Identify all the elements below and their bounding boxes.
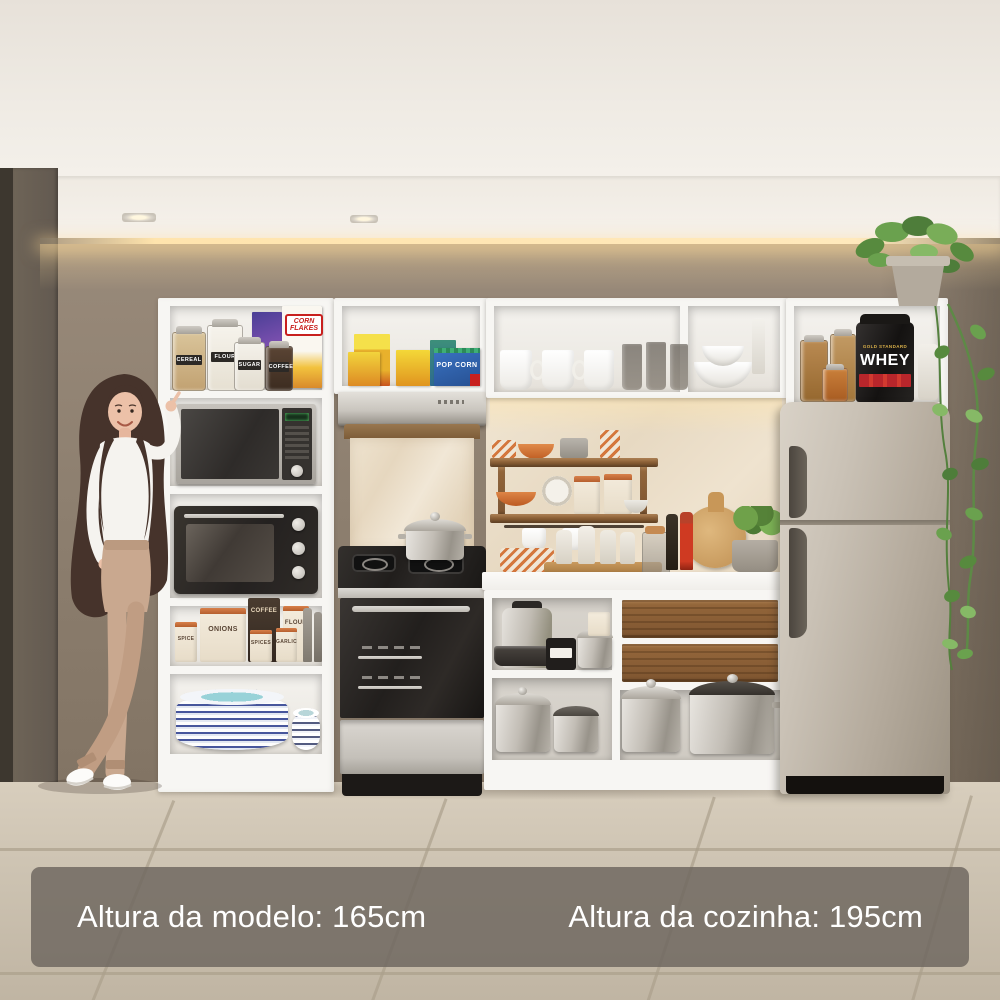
sauce-bottle-red — [680, 512, 693, 570]
fridge-base — [786, 776, 944, 794]
wood-grain — [622, 644, 778, 682]
pot-lid-knob — [430, 512, 440, 521]
freezer-handle — [789, 446, 807, 518]
oil-bottle — [303, 608, 312, 662]
pot-handle — [464, 534, 472, 539]
mug — [584, 350, 614, 390]
stove-vent — [362, 676, 426, 679]
frying-pan — [494, 646, 554, 666]
model-woman — [20, 358, 200, 798]
canister-spices: SPICES — [250, 630, 272, 662]
pothos-plant — [828, 212, 1000, 682]
black-canister — [546, 638, 576, 670]
plant-pot-rim — [886, 256, 950, 266]
oil-cruet — [600, 530, 616, 564]
hanging-mug — [522, 528, 546, 550]
stock-pot-large — [690, 692, 774, 754]
kitchen-height-label: Altura da cozinha: 195cm — [568, 899, 923, 935]
stove-vent-bar — [358, 656, 422, 659]
under-cabinet-glow — [490, 398, 782, 434]
vine — [948, 304, 978, 656]
countertop — [482, 572, 790, 590]
drawer-unit — [616, 596, 784, 686]
oil-cruet — [578, 526, 595, 564]
model-waistband — [104, 540, 149, 550]
plate-stack-small — [292, 712, 320, 750]
small-pot — [578, 636, 612, 668]
canister-label — [550, 648, 572, 658]
oil-cruet — [620, 532, 635, 564]
microwave-knob — [291, 465, 303, 477]
hood-buttons — [438, 400, 464, 404]
herb-foliage — [730, 506, 782, 536]
plant-pot — [892, 266, 944, 306]
stove-vent — [362, 646, 426, 649]
gray-jar — [560, 438, 588, 458]
recessed-spotlight — [350, 215, 378, 223]
kettle-handle — [512, 601, 542, 608]
burner-ring — [362, 558, 388, 571]
mug — [542, 350, 574, 390]
decor-jar — [492, 440, 516, 458]
food-box — [396, 350, 430, 386]
canister-onions: ONIONS — [200, 608, 246, 662]
pantry-jar-sugar: SUGAR — [234, 342, 265, 391]
model-eye — [117, 409, 120, 412]
oil-cruet — [556, 530, 572, 564]
microwave-panel — [282, 408, 312, 480]
drinking-glass — [622, 344, 642, 390]
microwave-display — [285, 413, 309, 421]
plant-pot — [732, 540, 778, 572]
stove-trim — [338, 588, 486, 598]
stove-vent-bar — [358, 686, 422, 689]
drawer-front-top — [622, 600, 778, 638]
model-shadow — [38, 778, 162, 794]
pot-lid-knob — [727, 674, 738, 683]
white-bottle — [752, 318, 765, 374]
plate-top — [293, 708, 319, 718]
drinking-glass — [646, 342, 666, 390]
white-canister — [588, 612, 610, 636]
oven-knob — [292, 566, 305, 579]
height-info-banner: Altura da modelo: 165cm Altura da cozinh… — [31, 867, 969, 967]
model-cuff — [106, 760, 125, 769]
popcorn-label: POP CORN — [434, 362, 480, 369]
pantry-jar-coffee: COFFEE — [265, 346, 293, 391]
shelf-bracket — [498, 467, 505, 515]
popcorn-box: POP CORN — [434, 348, 480, 386]
recessed-spotlight — [122, 213, 156, 222]
floor-grout-line — [0, 972, 1000, 975]
model-height-label: Altura da modelo: 165cm — [77, 899, 426, 935]
corn-flakes-logo: CORN FLAKES — [285, 314, 323, 336]
ceiling — [0, 0, 1000, 176]
pot-handle — [398, 534, 406, 539]
shelf-board-top — [490, 458, 658, 467]
oven-knob — [292, 542, 305, 555]
wood-grain — [622, 600, 778, 638]
oil-bottle — [314, 612, 322, 662]
stove — [336, 546, 488, 798]
decor-canister — [574, 476, 600, 514]
stove-drawer — [340, 720, 484, 774]
kitchen-product-photo: CORN FLAKES CEREAL FLOUR SUGAR COFFEE — [0, 0, 1000, 1000]
drinking-glass — [670, 344, 688, 390]
floor-grout-line — [0, 848, 1000, 851]
stove-door — [340, 598, 484, 718]
chevron-vase — [600, 430, 620, 458]
model-pointing-finger — [172, 393, 179, 404]
model-trousers-hip — [101, 542, 151, 612]
pot-lid-knob — [518, 687, 527, 695]
decor-plate — [542, 476, 572, 506]
wood-wall-shelf — [490, 430, 660, 542]
microwave-buttons — [285, 426, 309, 460]
drawer-front-bottom — [622, 644, 778, 682]
stove-backsplash-trim — [344, 424, 480, 439]
fridge-handle — [789, 528, 807, 638]
pot-lid-knob — [646, 679, 656, 688]
range-hood — [338, 392, 486, 426]
orange-bowl — [518, 444, 554, 459]
food-box — [348, 352, 380, 386]
oven-knob — [292, 518, 305, 531]
stock-pot — [496, 702, 550, 752]
pot-on-stove — [406, 528, 464, 560]
cutting-board-handle — [708, 492, 724, 512]
stock-pot — [554, 714, 598, 752]
mug — [500, 350, 532, 390]
wall-edge-left — [0, 168, 13, 788]
model-eye — [130, 409, 133, 412]
cork-lid — [645, 526, 665, 534]
stove-base — [342, 774, 482, 796]
stove-door-handle — [352, 606, 470, 612]
canister-garlic: GARLIC — [276, 628, 297, 662]
sauce-bottle-dark — [666, 514, 678, 570]
stock-pot — [622, 696, 680, 752]
shelf-board-bottom — [490, 514, 658, 523]
